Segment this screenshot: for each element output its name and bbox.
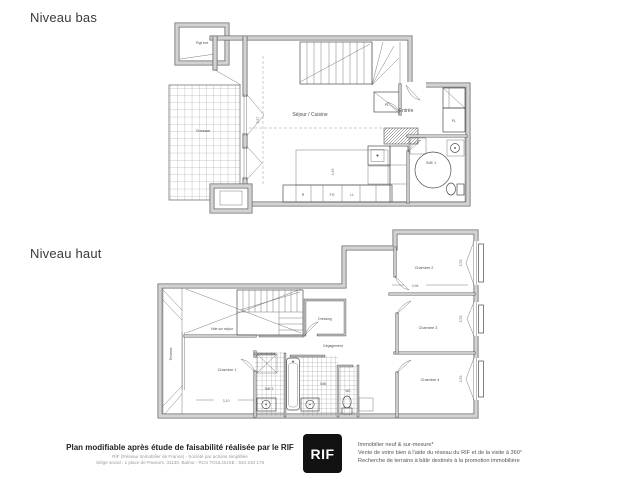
staircase-bas xyxy=(300,42,400,85)
floorplan-document: Niveau bas Niveau haut Terrasse Rgt ext xyxy=(0,0,640,480)
footer-services: Immobilier neuf & sur-mesure* Vente de v… xyxy=(358,441,628,465)
room-label-chambre1: Chambre 1 xyxy=(218,368,237,372)
room-label-sde1: SdE 1 xyxy=(426,161,436,165)
chambre4-area: Chambre 4 xyxy=(397,360,439,382)
room-label-rgt-ext: Rgt ext xyxy=(196,41,209,45)
sde2-area: SdE 2 xyxy=(255,352,285,416)
dim-chambre2: 3,96 xyxy=(412,284,419,288)
chambre2-area: Chambre 2 3,96 xyxy=(392,266,468,290)
room-label-wc: WC xyxy=(345,389,351,393)
wc-area: WC xyxy=(338,366,358,416)
level-label-bas: Niveau bas xyxy=(30,10,97,25)
dim-window4: 2,53 xyxy=(459,376,463,383)
room-label-sejour-cuisine: Séjour / Cuisine xyxy=(292,112,328,118)
room-label-terrasse-haut: Terrasse xyxy=(169,347,173,360)
rif-logo-text: RIF xyxy=(310,446,334,462)
rgt-ext-area: Rgt ext xyxy=(177,25,227,63)
appliance-refrigerator: R xyxy=(302,193,305,197)
service-line-2: Vente de votre bien à l'aide du réseau d… xyxy=(358,449,628,457)
room-label-sdb: SdB xyxy=(320,382,326,386)
appliance-oven: FO xyxy=(330,193,335,197)
terrasse-bas-area: Terrasse xyxy=(169,85,240,200)
window-chambre2: 2,53 xyxy=(459,241,484,285)
footer-company-info: RIF (Réseau Immobilier de France) - Soci… xyxy=(40,454,320,465)
dressing-area: Dressing xyxy=(305,317,332,335)
service-line-1: Immobilier neuf & sur-mesure* xyxy=(358,441,628,449)
dim-window2: 2,53 xyxy=(459,260,463,267)
service-line-3: Recherche de terrains à bâtir destinés à… xyxy=(358,457,628,465)
appliance-washer: LL xyxy=(350,193,354,197)
rif-logo: RIF xyxy=(303,434,342,473)
closet-label-pl-entree: PL xyxy=(452,119,456,123)
plan-niveau-bas: Terrasse Rgt ext xyxy=(163,16,473,216)
footer-address-line: Siège social : 1 place de Paveurs, 31130… xyxy=(40,460,320,466)
room-label-terrasse-bas: Terrasse xyxy=(196,129,211,133)
window-chambre3: 2,53 xyxy=(459,302,484,336)
chambre1-area: Chambre 1 3,10 xyxy=(196,359,255,403)
dim-window3: 2,53 xyxy=(459,316,463,323)
room-label-chambre3: Chambre 3 xyxy=(419,326,438,330)
chambre3-area: Chambre 3 xyxy=(397,301,437,330)
room-label-degagement: Dégagement xyxy=(323,344,342,348)
room-label-vide: Vide sur séjour xyxy=(211,327,234,331)
dim-chambre1: 3,10 xyxy=(223,399,230,403)
terrasse-haut-area: Terrasse xyxy=(163,288,184,416)
plan-niveau-haut: Terrasse Vide sur séjour xyxy=(156,224,486,434)
room-label-dressing: Dressing xyxy=(318,317,331,321)
room-label-chambre2: Chambre 2 xyxy=(415,266,434,270)
sde1-area: SdE 1 xyxy=(408,136,466,202)
window-chambre4: 2,53 xyxy=(459,358,484,400)
sdb-area: SdB xyxy=(287,356,339,416)
room-label-chambre4: Chambre 4 xyxy=(421,378,440,382)
room-label-sde2: SdE 2 xyxy=(265,387,274,391)
dim-sejour: 5,57 xyxy=(256,117,260,124)
room-label-entree: Entrée xyxy=(399,108,414,114)
vide-sur-sejour-area: Vide sur séjour xyxy=(186,289,301,333)
dim-cuisine: 4,49 xyxy=(331,169,335,176)
footer-title: Plan modifiable après étude de faisabili… xyxy=(40,443,320,452)
level-label-haut: Niveau haut xyxy=(30,246,102,261)
